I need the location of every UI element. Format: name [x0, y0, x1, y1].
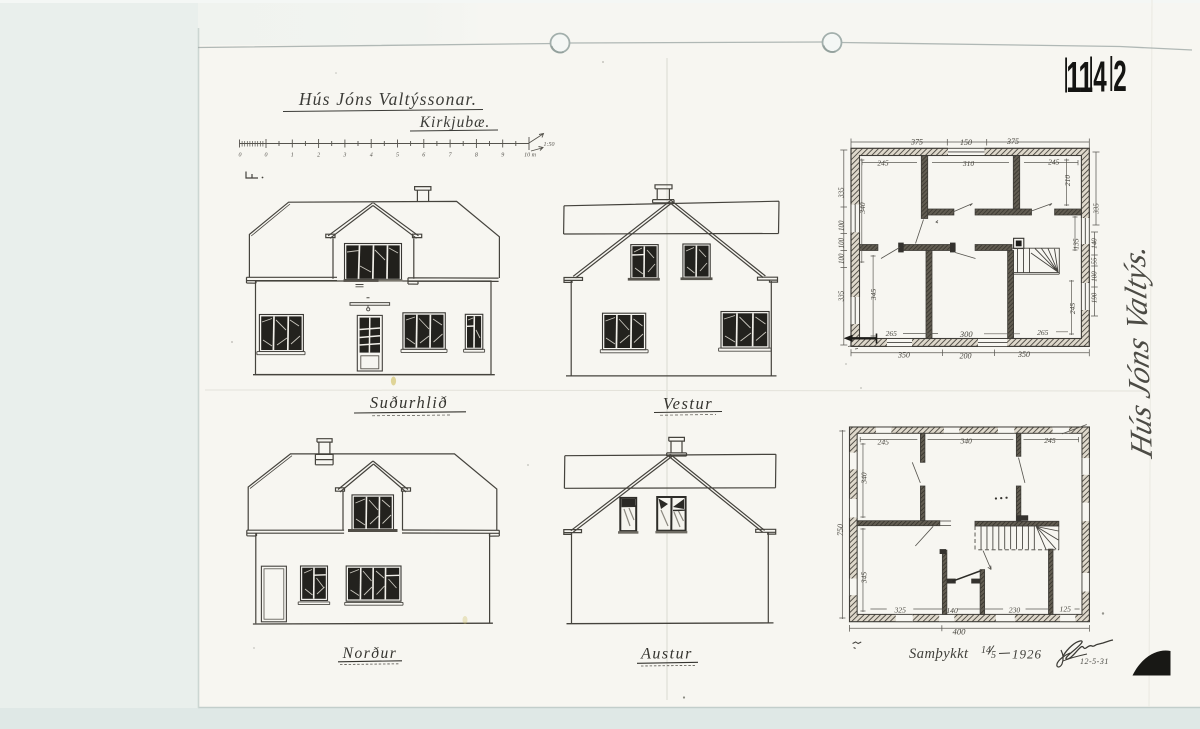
svg-text:0: 0 — [239, 153, 242, 159]
svg-text:300: 300 — [959, 329, 974, 339]
svg-text:1: 1 — [291, 153, 294, 159]
svg-text:100: 100 — [1091, 271, 1099, 282]
svg-text:8: 8 — [475, 153, 478, 159]
svg-text:335: 335 — [838, 290, 846, 302]
svg-text:325: 325 — [893, 606, 906, 615]
svg-text:4: 4 — [370, 152, 373, 159]
svg-text:340: 340 — [859, 472, 868, 484]
svg-text:140: 140 — [946, 606, 958, 615]
svg-text:3: 3 — [342, 153, 346, 159]
svg-text:4: 4 — [1093, 52, 1107, 102]
svg-text:345: 345 — [869, 289, 878, 302]
svg-text:100: 100 — [838, 220, 846, 231]
svg-text:5: 5 — [991, 650, 996, 661]
svg-text:55: 55 — [1091, 257, 1099, 265]
svg-text:1926: 1926 — [1012, 647, 1042, 662]
svg-text:200: 200 — [960, 352, 972, 361]
svg-text:135: 135 — [1071, 238, 1080, 250]
svg-text:1:50: 1:50 — [544, 142, 555, 148]
svg-text:5: 5 — [396, 153, 399, 159]
svg-text:1: 1 — [1078, 52, 1093, 102]
svg-text:245: 245 — [1044, 436, 1056, 445]
svg-text:245: 245 — [1068, 303, 1077, 315]
svg-text:750: 750 — [836, 524, 845, 536]
svg-text:340: 340 — [858, 202, 867, 215]
svg-text:310: 310 — [962, 159, 975, 168]
svg-text:Norður: Norður — [342, 645, 398, 662]
svg-text:375: 375 — [1006, 137, 1019, 146]
svg-text:335: 335 — [838, 187, 846, 199]
svg-text:Suðurhlið: Suðurhlið — [370, 393, 448, 412]
svg-text:265: 265 — [886, 329, 898, 338]
svg-text:100: 100 — [838, 237, 846, 248]
svg-text:140: 140 — [1091, 238, 1099, 249]
svg-text:265: 265 — [1037, 328, 1049, 337]
svg-text:210: 210 — [1063, 175, 1072, 187]
svg-text:400: 400 — [952, 627, 966, 637]
svg-text:0: 0 — [265, 153, 268, 159]
svg-text:6: 6 — [422, 153, 425, 159]
svg-text:2: 2 — [317, 153, 320, 159]
svg-text:2: 2 — [1113, 51, 1126, 101]
svg-text:10 m: 10 m — [524, 153, 537, 159]
svg-text:100: 100 — [838, 253, 846, 264]
svg-text:245: 245 — [877, 159, 889, 168]
svg-text:230: 230 — [1009, 605, 1021, 614]
svg-text:245: 245 — [1048, 158, 1060, 167]
svg-text:335: 335 — [1093, 203, 1101, 215]
svg-text:245: 245 — [878, 438, 890, 447]
svg-text:340: 340 — [960, 437, 973, 446]
svg-text:Vestur: Vestur — [663, 394, 713, 413]
svg-text:350: 350 — [1017, 350, 1030, 359]
svg-text:12-5-31: 12-5-31 — [1080, 657, 1109, 666]
svg-text:14: 14 — [981, 645, 991, 656]
svg-text:Samþykkt: Samþykkt — [909, 646, 969, 662]
svg-text:Austur: Austur — [640, 646, 693, 663]
svg-text:345: 345 — [859, 572, 868, 584]
svg-text:Hús Jóns Valtýssonar.: Hús Jóns Valtýssonar. — [298, 89, 477, 109]
svg-text:9: 9 — [501, 153, 504, 159]
svg-text:375: 375 — [910, 138, 923, 147]
svg-text:125: 125 — [1060, 604, 1072, 613]
svg-text:Kirkjubæ.: Kirkjubæ. — [419, 114, 491, 131]
svg-text:190: 190 — [1091, 292, 1099, 303]
svg-text:350: 350 — [897, 351, 910, 360]
svg-text:150: 150 — [960, 138, 972, 147]
